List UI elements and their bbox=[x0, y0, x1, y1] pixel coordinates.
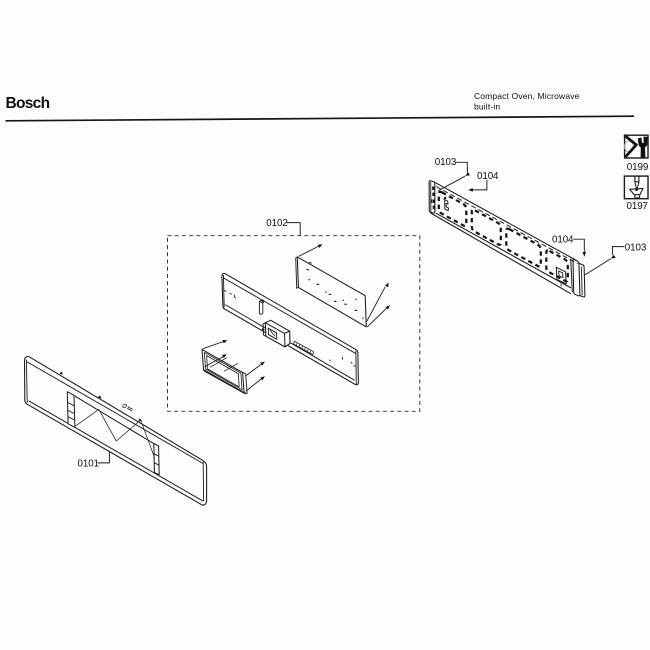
svg-text:built-in: built-in bbox=[474, 102, 500, 112]
svg-text:0103: 0103 bbox=[625, 242, 647, 253]
svg-text:Bosch: Bosch bbox=[6, 95, 50, 112]
svg-text:0197: 0197 bbox=[627, 201, 648, 212]
svg-text:Compact Oven, Microwave: Compact Oven, Microwave bbox=[474, 91, 580, 101]
svg-text:0103: 0103 bbox=[435, 157, 457, 168]
svg-text:0104: 0104 bbox=[477, 171, 499, 182]
svg-text:0104: 0104 bbox=[552, 234, 574, 245]
svg-text:0199: 0199 bbox=[627, 162, 648, 173]
svg-text:0102: 0102 bbox=[266, 218, 287, 229]
svg-text:0101: 0101 bbox=[78, 458, 99, 469]
